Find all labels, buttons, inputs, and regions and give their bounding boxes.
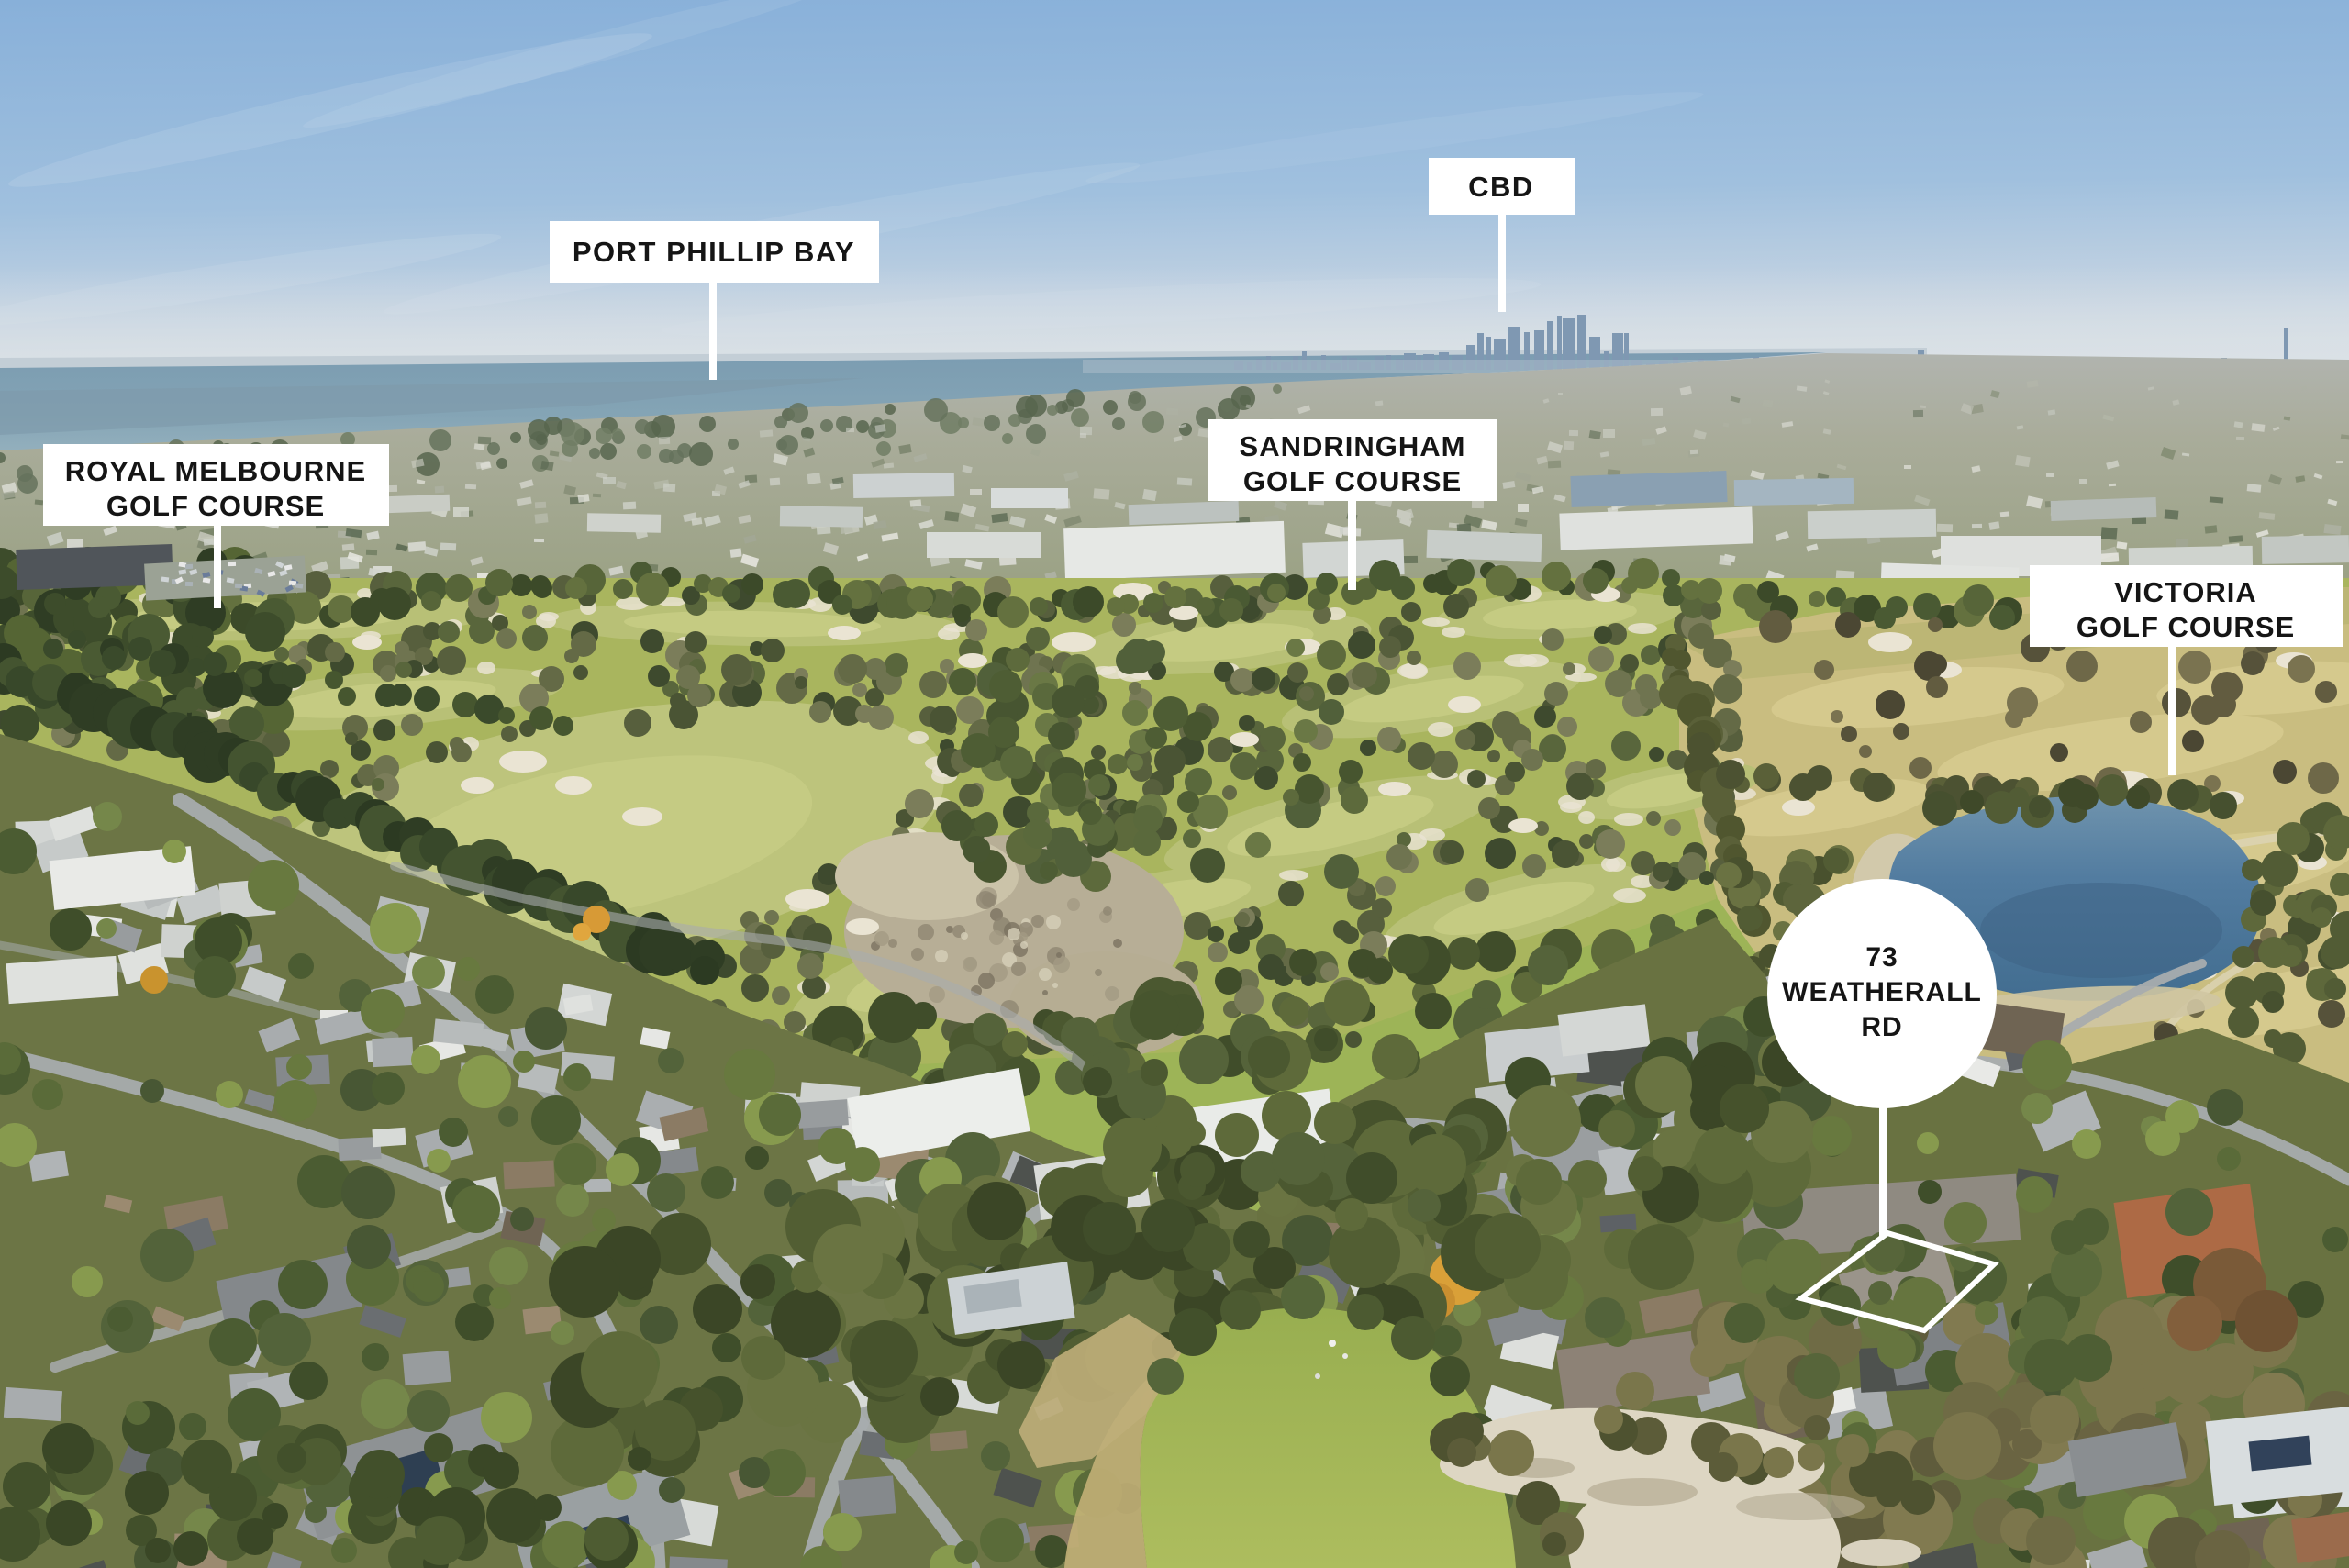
- svg-text:SANDRINGHAM: SANDRINGHAM: [1240, 430, 1466, 462]
- svg-text:VICTORIA: VICTORIA: [2114, 576, 2257, 608]
- svg-text:GOLF COURSE: GOLF COURSE: [106, 490, 325, 522]
- svg-text:GOLF COURSE: GOLF COURSE: [1243, 465, 1462, 497]
- svg-text:CBD: CBD: [1468, 171, 1534, 203]
- svg-text:RD: RD: [1861, 1012, 1902, 1042]
- svg-text:WEATHERALL: WEATHERALL: [1782, 977, 1982, 1007]
- svg-text:73: 73: [1865, 942, 1898, 973]
- svg-text:GOLF COURSE: GOLF COURSE: [2076, 611, 2295, 643]
- svg-text:PORT PHILLIP BAY: PORT PHILLIP BAY: [573, 236, 855, 268]
- svg-text:ROYAL MELBOURNE: ROYAL MELBOURNE: [65, 455, 366, 487]
